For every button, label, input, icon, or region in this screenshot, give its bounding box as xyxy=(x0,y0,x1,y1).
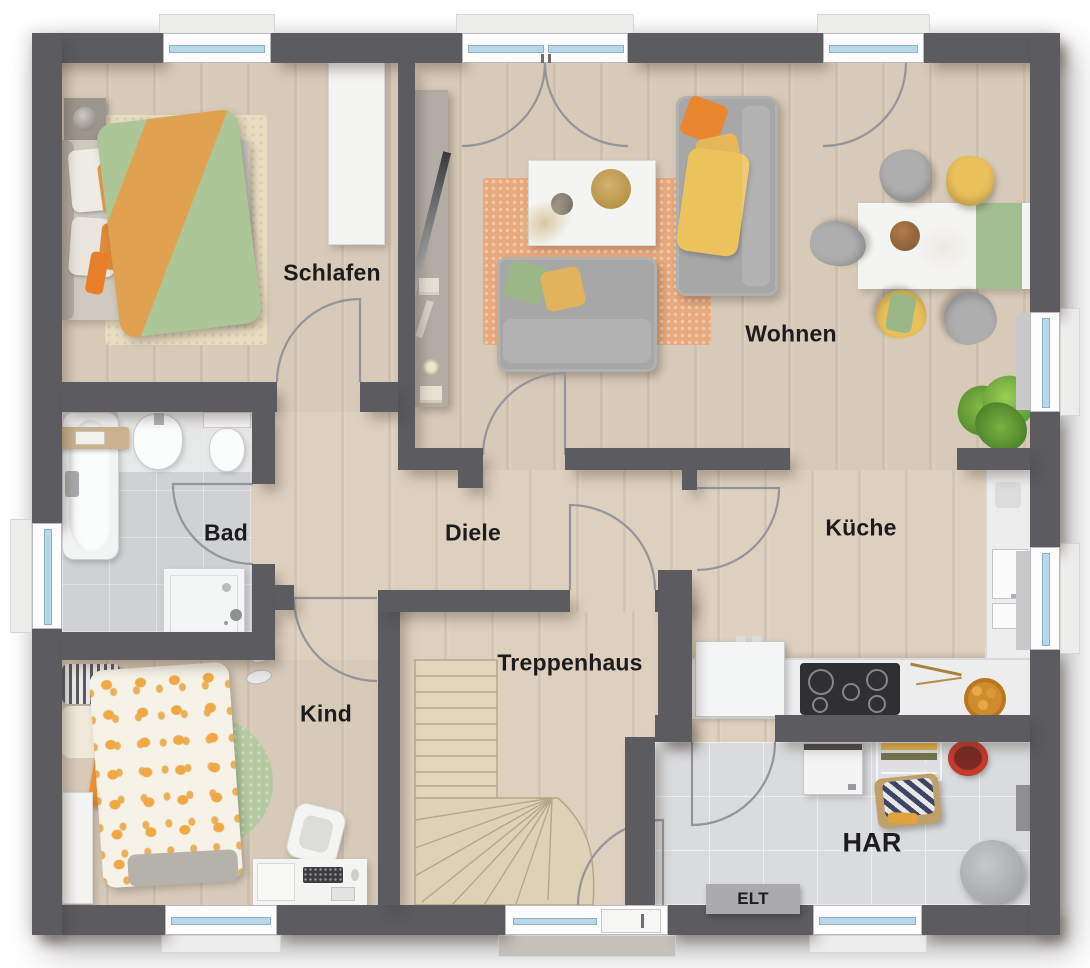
clothes-white xyxy=(881,763,937,769)
wall xyxy=(957,448,1030,470)
radiator xyxy=(1016,314,1030,410)
wall xyxy=(32,629,62,935)
window-glass xyxy=(819,917,916,925)
window-bad xyxy=(32,523,62,629)
bath-caddy xyxy=(53,427,129,449)
clothes-olive xyxy=(881,753,937,760)
window-wohnen-right xyxy=(1030,312,1060,412)
wall xyxy=(32,33,62,523)
window-schlafen xyxy=(163,33,271,63)
bed-blanket-gray xyxy=(127,849,239,887)
entrance-door xyxy=(505,905,668,935)
room-label-schlafen: Schlafen xyxy=(283,260,380,287)
wall xyxy=(398,63,415,448)
laundry-basket xyxy=(874,773,943,829)
door-handle xyxy=(548,54,551,63)
toilet-bowl xyxy=(209,428,245,472)
wall xyxy=(1030,33,1060,312)
wall xyxy=(625,737,655,905)
table-lamp xyxy=(73,107,97,131)
window-sill xyxy=(456,14,634,34)
books xyxy=(420,386,442,400)
wall xyxy=(1030,412,1060,547)
clothes-yellow xyxy=(881,743,937,750)
sofa-small xyxy=(497,257,657,372)
room-label-diele: Diele xyxy=(445,520,501,547)
wall xyxy=(360,382,398,412)
sofa-seat xyxy=(503,319,651,363)
door-leaf xyxy=(601,909,661,933)
shower-drain xyxy=(222,583,231,592)
floorplan-canvas: Schlafen Wohnen Bad Diele Küche Kind Tre… xyxy=(0,0,1090,968)
window-sill xyxy=(10,519,32,633)
refrigerator xyxy=(695,641,785,717)
wall xyxy=(1030,650,1060,935)
wall xyxy=(565,448,790,470)
basin-faucet xyxy=(154,413,164,425)
washing-machine xyxy=(803,743,863,795)
burner xyxy=(866,669,888,691)
dining-table xyxy=(858,203,1040,289)
toilet-tank xyxy=(203,412,251,428)
wall xyxy=(775,715,1030,742)
table-runner-green xyxy=(976,203,1022,289)
room-label-treppenhaus: Treppenhaus xyxy=(497,650,642,677)
monitor xyxy=(331,887,355,901)
window-glass xyxy=(548,45,624,53)
red-bucket xyxy=(948,740,988,776)
window-sill xyxy=(1060,543,1080,654)
bathtub xyxy=(62,412,119,560)
garden-door-wohnen xyxy=(823,33,924,63)
keyboard xyxy=(303,867,343,883)
fridge-hinge xyxy=(752,636,761,642)
book xyxy=(75,431,105,445)
throw-blanket-yellow xyxy=(675,146,751,258)
tub-faucet xyxy=(65,471,79,497)
napkin-green xyxy=(885,292,917,334)
machine-knob xyxy=(848,784,856,790)
water-boiler-tank xyxy=(960,840,1024,904)
door-handle xyxy=(641,914,644,928)
coffee-table xyxy=(528,160,656,246)
fruit-bowl xyxy=(964,678,1006,720)
door-sidelight-glass xyxy=(513,918,597,925)
window-glass xyxy=(1042,553,1050,646)
window-glass xyxy=(44,529,52,625)
sofa-large xyxy=(676,96,778,296)
books xyxy=(415,300,433,338)
window-sill xyxy=(809,935,927,953)
wall xyxy=(252,412,275,484)
wardrobe-kind xyxy=(62,792,93,904)
burner xyxy=(868,695,886,713)
window-sill xyxy=(159,14,275,34)
washbasin xyxy=(133,414,183,470)
chair-seat xyxy=(297,814,334,854)
wall xyxy=(275,585,294,610)
window-glass xyxy=(171,917,271,925)
wall xyxy=(378,590,400,905)
door-handle xyxy=(541,54,544,63)
room-label-kueche: Küche xyxy=(825,515,896,542)
wall xyxy=(655,715,692,742)
window-glass xyxy=(829,45,918,53)
room-label-wohnen: Wohnen xyxy=(745,321,836,348)
window-har xyxy=(813,905,922,935)
books xyxy=(419,278,439,292)
decor-twig xyxy=(916,677,962,685)
wall xyxy=(277,905,505,935)
radiator xyxy=(1016,551,1030,650)
deco-plate xyxy=(422,358,440,376)
window-glass xyxy=(1042,318,1050,408)
wall xyxy=(271,33,462,63)
room-label-har: HAR xyxy=(842,828,901,859)
mouse xyxy=(351,869,359,881)
room-label-elt: ELT xyxy=(737,889,768,909)
window-kueche xyxy=(1030,547,1060,650)
fridge-hinge xyxy=(736,636,745,642)
wall-pillar xyxy=(682,470,697,490)
wardrobe-schlafen xyxy=(328,53,385,245)
window-sill xyxy=(1060,308,1080,416)
burner xyxy=(812,697,828,713)
room-label-bad: Bad xyxy=(204,520,248,547)
bed-duvet xyxy=(95,108,262,339)
entrance-step xyxy=(498,935,676,957)
wall xyxy=(62,382,277,412)
desk-drawer-unit xyxy=(257,863,295,901)
burner xyxy=(842,683,860,701)
machine-top xyxy=(804,744,862,750)
window-sill xyxy=(817,14,930,34)
wall-cabinet xyxy=(1016,785,1030,831)
fruit xyxy=(978,700,988,710)
room-label-kind: Kind xyxy=(300,701,352,728)
small-appliance xyxy=(995,482,1021,508)
dried-flowers xyxy=(914,225,972,271)
window-kind xyxy=(165,905,277,935)
wall xyxy=(62,632,275,660)
wall-pillar xyxy=(458,470,483,488)
wall xyxy=(628,33,823,63)
cooktop xyxy=(800,663,900,715)
fruit xyxy=(972,686,982,696)
tv-sideboard xyxy=(415,90,448,407)
clothes-yellow xyxy=(888,812,918,824)
cushion-yellow xyxy=(539,265,586,312)
sofa-armrest xyxy=(742,106,770,286)
wall xyxy=(252,564,275,632)
shower-head xyxy=(230,609,242,621)
desk xyxy=(253,859,367,905)
balcony-double-door xyxy=(462,33,628,63)
deco-tray xyxy=(591,169,631,209)
window-glass xyxy=(468,45,544,53)
wall xyxy=(378,590,570,612)
fruit xyxy=(986,688,996,698)
decor-twig xyxy=(910,663,961,677)
burner xyxy=(808,669,834,695)
window-sill xyxy=(161,935,281,953)
wall xyxy=(398,448,483,470)
window-glass xyxy=(169,45,265,53)
